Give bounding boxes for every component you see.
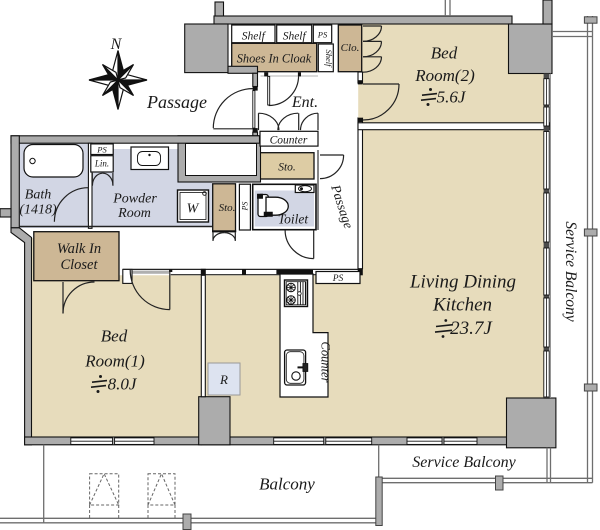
svg-text:Passage: Passage <box>146 92 207 112</box>
svg-text:Room(1): Room(1) <box>84 352 145 371</box>
svg-text:Closet: Closet <box>60 257 98 273</box>
svg-text:Bed: Bed <box>101 327 128 346</box>
svg-text:Room: Room <box>117 206 151 221</box>
svg-text:Counter: Counter <box>270 135 308 147</box>
svg-text:Powder: Powder <box>112 192 157 207</box>
svg-text:Shoes In Cloak: Shoes In Cloak <box>237 52 312 66</box>
svg-text:Service Balcony: Service Balcony <box>562 221 579 321</box>
svg-text:5.6J: 5.6J <box>437 88 467 107</box>
svg-text:PS: PS <box>332 274 344 284</box>
svg-text:R: R <box>219 372 228 387</box>
svg-text:Shelf: Shelf <box>242 31 267 43</box>
svg-text:PS: PS <box>96 145 107 155</box>
svg-text:Kitchen: Kitchen <box>432 295 492 316</box>
svg-text:Balcony: Balcony <box>259 475 315 494</box>
svg-text:Bath: Bath <box>25 188 51 203</box>
svg-text:(1418): (1418) <box>19 203 57 218</box>
svg-text:Sto.: Sto. <box>219 202 236 214</box>
svg-text:PS: PS <box>241 202 250 212</box>
svg-text:Shelf: Shelf <box>324 50 334 69</box>
svg-text:Toilet: Toilet <box>278 212 310 227</box>
svg-text:Living Dining: Living Dining <box>409 272 516 293</box>
svg-text:Lin.: Lin. <box>94 159 109 169</box>
svg-text:Sto.: Sto. <box>278 162 296 174</box>
svg-text:Walk In: Walk In <box>57 241 101 257</box>
svg-text:Room(2): Room(2) <box>414 66 475 85</box>
svg-text:W: W <box>187 202 200 217</box>
svg-text:Shelf: Shelf <box>283 31 308 43</box>
svg-text:PS: PS <box>317 30 328 40</box>
svg-text:Service Balcony: Service Balcony <box>412 454 516 471</box>
svg-text:Clo.: Clo. <box>341 42 360 54</box>
svg-text:Bed: Bed <box>431 44 458 63</box>
svg-text:23.7J: 23.7J <box>450 318 493 339</box>
svg-text:8.0J: 8.0J <box>108 375 138 394</box>
svg-text:Ent.: Ent. <box>291 94 318 111</box>
svg-text:N: N <box>110 36 123 53</box>
svg-text:Counter: Counter <box>319 342 333 383</box>
